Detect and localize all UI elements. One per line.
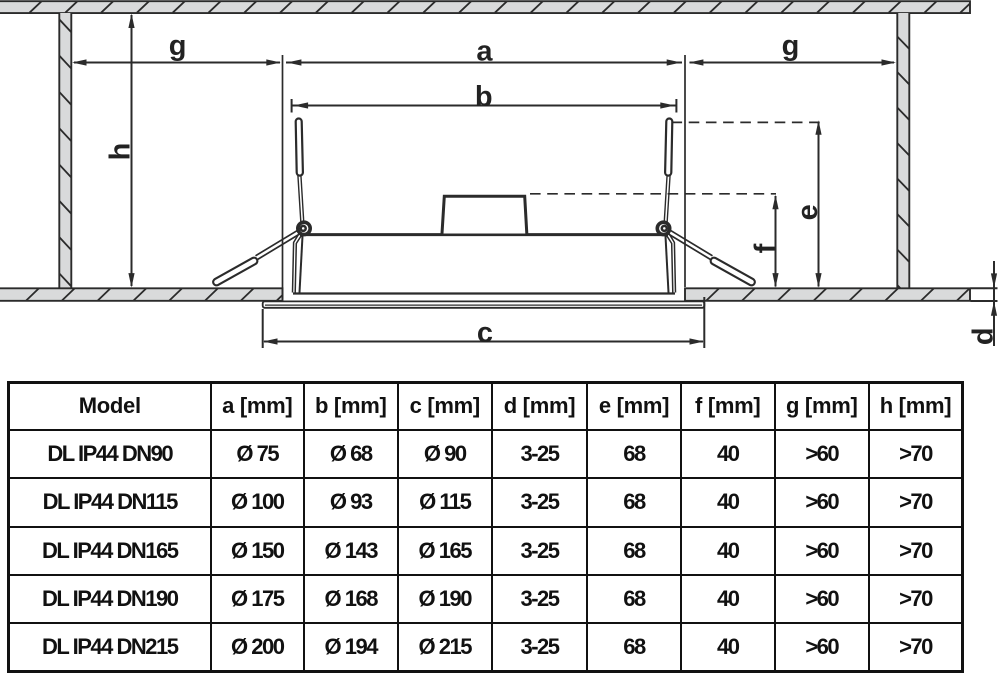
svg-text:g: g	[782, 30, 800, 62]
svg-text:f: f	[749, 243, 781, 253]
svg-text:b: b	[475, 81, 493, 113]
svg-text:c: c	[477, 317, 493, 349]
svg-text:a: a	[476, 36, 493, 68]
svg-text:d: d	[967, 327, 999, 345]
svg-text:h: h	[105, 143, 137, 161]
svg-text:g: g	[169, 30, 187, 62]
svg-text:e: e	[792, 204, 824, 220]
